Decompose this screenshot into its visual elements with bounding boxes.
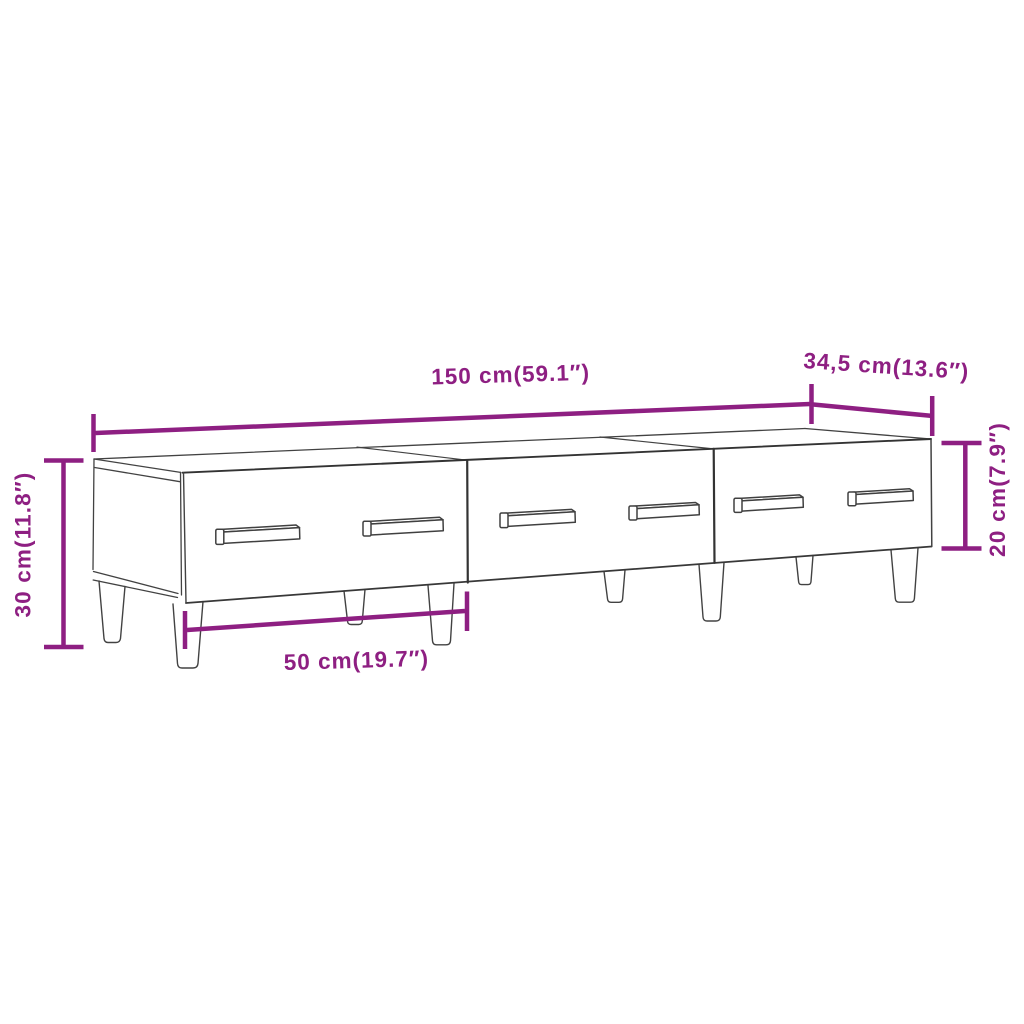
svg-text:50 cm(19.7″): 50 cm(19.7″): [283, 646, 429, 675]
svg-text:20 cm(7.9″): 20 cm(7.9″): [985, 422, 1010, 557]
svg-text:150 cm(59.1″): 150 cm(59.1″): [431, 360, 591, 390]
svg-text:30 cm(11.8″): 30 cm(11.8″): [11, 472, 36, 618]
